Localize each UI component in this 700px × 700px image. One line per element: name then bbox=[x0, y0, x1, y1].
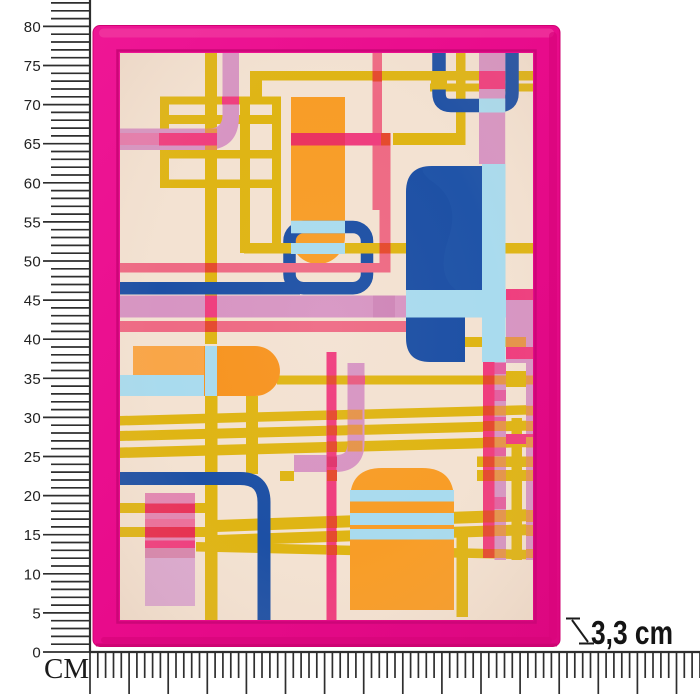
svg-text:40: 40 bbox=[24, 332, 41, 349]
svg-text:0: 0 bbox=[32, 645, 41, 662]
svg-text:65: 65 bbox=[24, 136, 41, 153]
svg-text:30: 30 bbox=[24, 410, 41, 427]
svg-text:55: 55 bbox=[24, 214, 41, 231]
svg-text:5: 5 bbox=[32, 605, 41, 622]
svg-text:60: 60 bbox=[24, 175, 41, 192]
svg-text:45: 45 bbox=[24, 293, 41, 310]
svg-text:35: 35 bbox=[24, 371, 41, 388]
svg-text:CM: CM bbox=[44, 653, 89, 685]
svg-text:80: 80 bbox=[24, 19, 41, 36]
svg-text:75: 75 bbox=[24, 58, 41, 75]
svg-text:15: 15 bbox=[24, 527, 41, 544]
svg-text:70: 70 bbox=[24, 97, 41, 114]
svg-text:10: 10 bbox=[24, 566, 41, 583]
svg-text:25: 25 bbox=[24, 449, 41, 466]
svg-text:50: 50 bbox=[24, 254, 41, 271]
svg-text:3,3 cm: 3,3 cm bbox=[591, 614, 673, 651]
svg-text:20: 20 bbox=[24, 488, 41, 505]
